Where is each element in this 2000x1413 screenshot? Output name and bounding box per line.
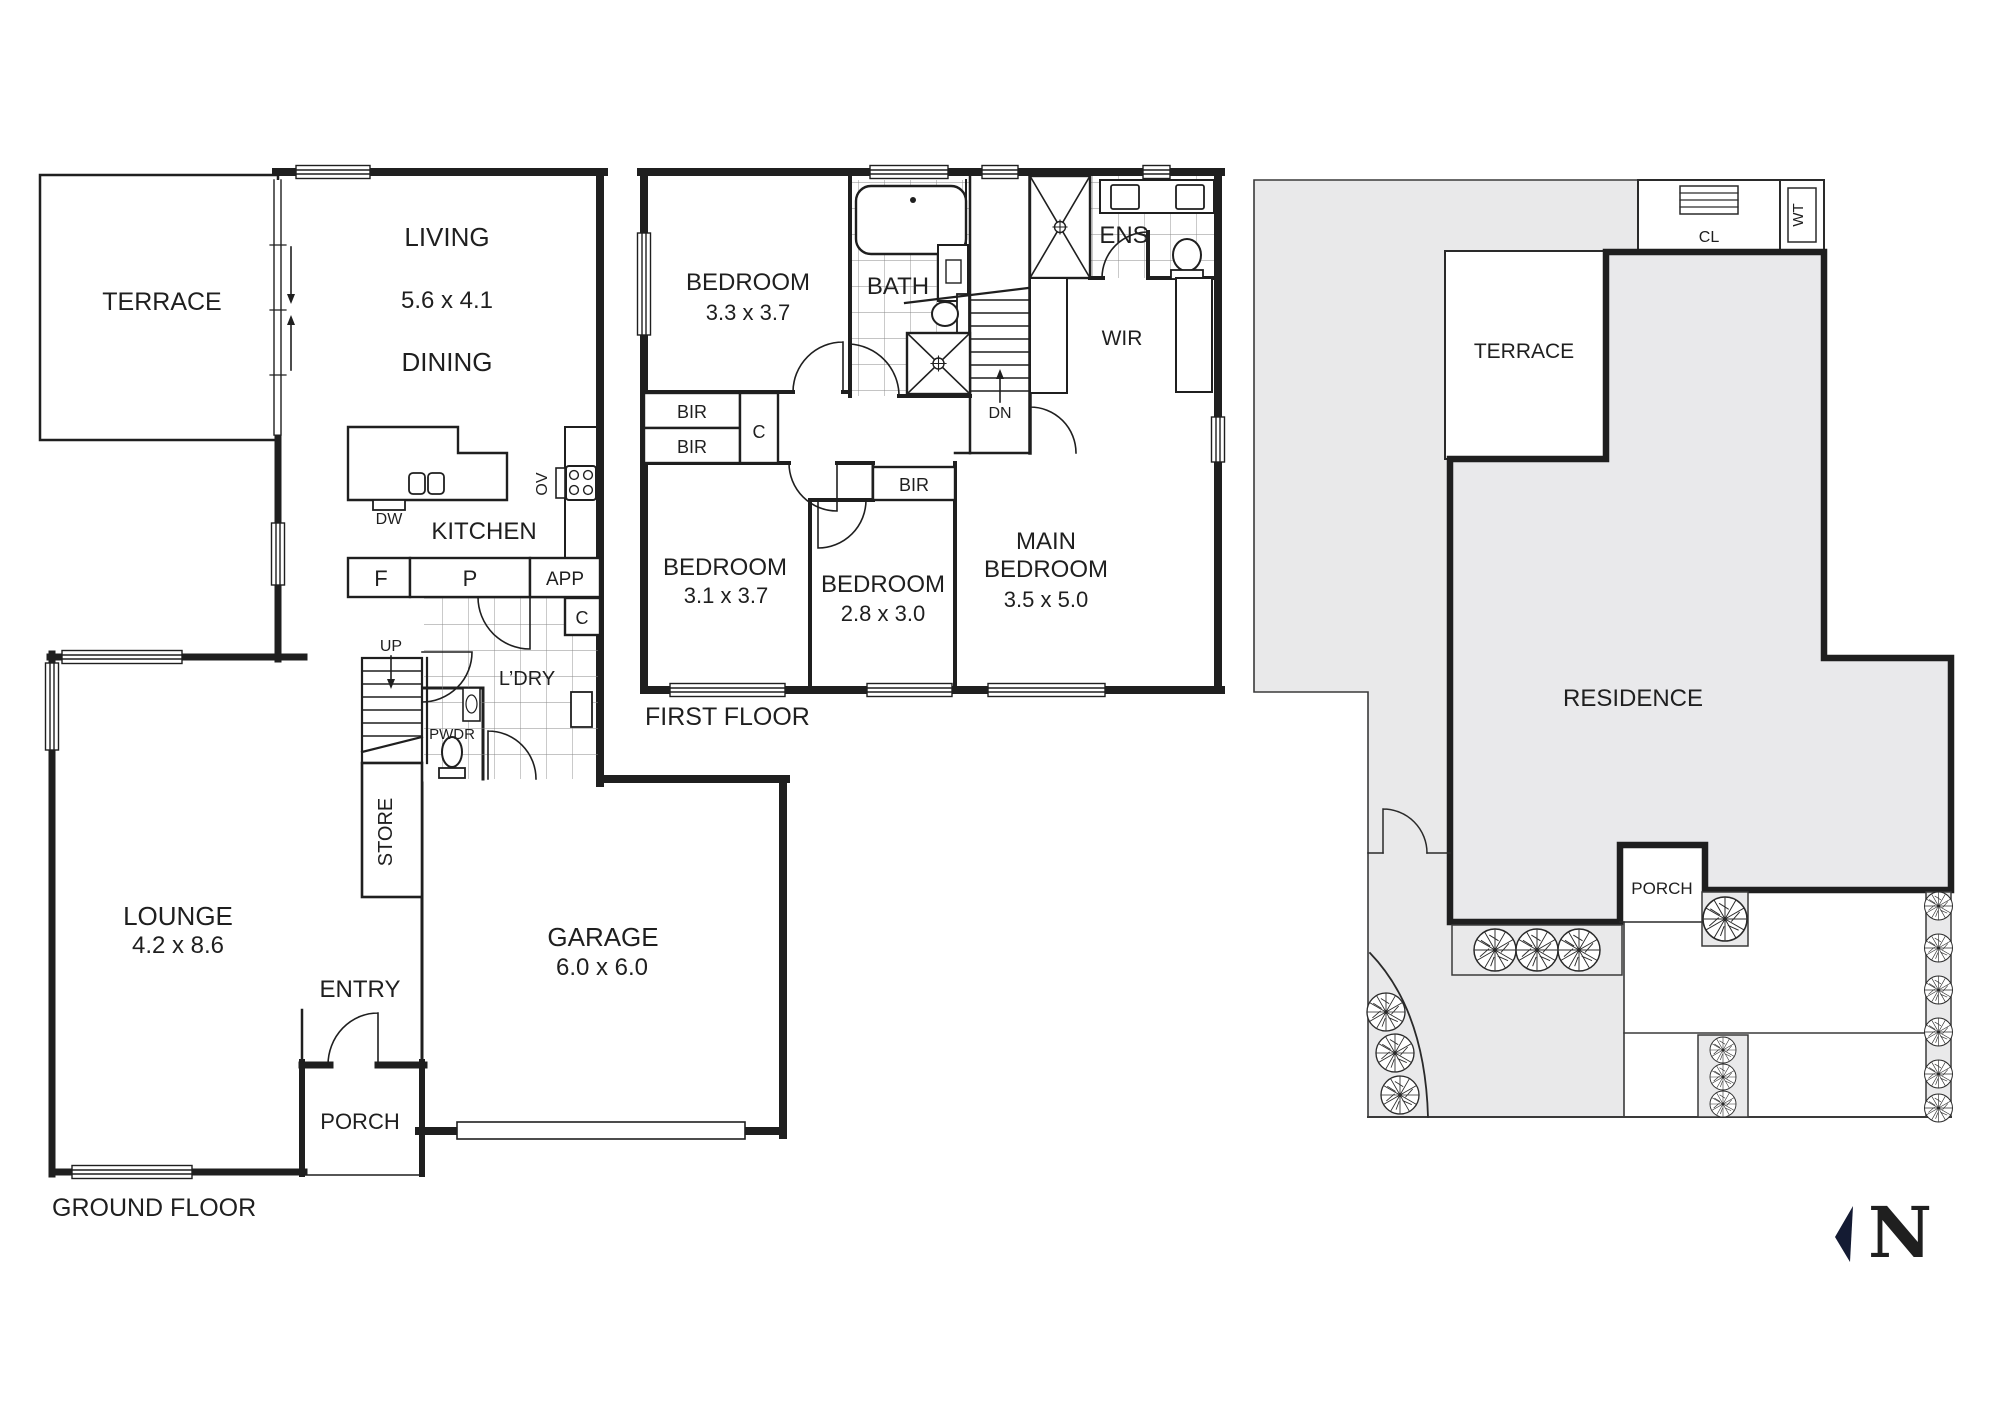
first-floor-plan: BEDROOM 3.3 x 3.7 BATH ENS WIR DN BIR BI… [638, 166, 1225, 732]
kitchen-label: KITCHEN [431, 518, 536, 545]
tree-icon [1381, 1076, 1419, 1114]
powder-label: PWDR [429, 726, 475, 743]
up-label: UP [380, 638, 402, 655]
store-label: STORE [375, 798, 397, 867]
laundry-trough-icon [571, 692, 592, 727]
cupboard-label: C [753, 422, 766, 442]
window [638, 233, 651, 335]
bedroom3-label: BEDROOM [821, 571, 945, 598]
main-bedroom-door [1030, 407, 1076, 453]
sliding-door [270, 180, 295, 435]
window [870, 166, 948, 179]
lounge-label: LOUNGE [123, 901, 233, 931]
bedroom2-door [789, 463, 837, 511]
tree-icon [1925, 1060, 1953, 1088]
clothesline-icon [1680, 186, 1738, 214]
tree-icon [1925, 1018, 1953, 1046]
window [982, 166, 1018, 179]
window [988, 684, 1105, 697]
bir-label: BIR [899, 475, 929, 495]
north-label: N [1868, 1191, 1932, 1274]
sink-icon [1111, 185, 1139, 209]
tree-icon [1925, 934, 1953, 962]
shower-icon [1030, 176, 1090, 278]
dishwasher-label: DW [376, 511, 404, 528]
floorplan-canvas: TERRACE LIVING 5.6 x 4.1 DINING DW KITCH… [0, 0, 2000, 1413]
lounge-dim-label: 4.2 x 8.6 [132, 932, 224, 959]
dn-arrow-icon [996, 369, 1004, 402]
sink-icon [1176, 185, 1204, 209]
laundry-label: L’DRY [499, 668, 555, 690]
garage-dim-label: 6.0 x 6.0 [556, 954, 648, 981]
window [867, 684, 952, 697]
site-plan: CL WT [1254, 180, 1953, 1122]
toilet-cistern [439, 768, 465, 778]
tree-icon [1367, 993, 1405, 1031]
window [272, 523, 285, 585]
dishwasher-box [373, 500, 405, 510]
tree-icon [1516, 929, 1558, 971]
appliances-label: APP [546, 569, 584, 590]
main-bedroom-label1: MAIN [1016, 528, 1076, 555]
living-dim-label: 5.6 x 4.1 [401, 287, 493, 314]
porch-label: PORCH [320, 1109, 399, 1134]
slide-arrow-down-icon [287, 247, 295, 304]
tree-icon [1710, 1064, 1736, 1090]
main-bedroom-label2: BEDROOM [984, 556, 1108, 583]
site-terrace-label: TERRACE [1474, 340, 1574, 363]
window [1143, 166, 1170, 179]
north-arrow-icon [1835, 1206, 1853, 1262]
front-door [328, 1013, 378, 1065]
tree-icon [1703, 897, 1747, 941]
bedroom1-label: BEDROOM [686, 269, 810, 296]
clothesline-label: CL [1699, 229, 1720, 246]
tree-icon [1925, 976, 1953, 1004]
tree-icon [1558, 929, 1600, 971]
tree-icon [1710, 1037, 1736, 1063]
bath-label: BATH [867, 273, 929, 300]
oven-label: OV [534, 472, 551, 495]
cooktop-icon [556, 466, 596, 500]
window [46, 663, 59, 750]
toilet-icon [932, 302, 958, 326]
bedroom2-label: BEDROOM [663, 554, 787, 581]
bedroom1-door [793, 342, 843, 392]
kitchen-island [348, 427, 507, 510]
bedroom3-door [818, 500, 866, 548]
toilet-icon [1173, 239, 1201, 271]
window [1212, 417, 1225, 462]
tree-icon [1376, 1034, 1414, 1072]
tree-icon [1925, 1094, 1953, 1122]
garage-door [457, 1122, 745, 1139]
window [72, 1166, 192, 1179]
bedroom1-dim-label: 3.3 x 3.7 [706, 300, 790, 325]
terrace-label: TERRACE [102, 288, 221, 316]
water-tank-label: WT [1790, 203, 1807, 226]
bedroom3-dim-label: 2.8 x 3.0 [841, 601, 925, 626]
entry-label: ENTRY [320, 976, 401, 1003]
sink-icon [428, 473, 444, 494]
bathtub-icon [856, 186, 966, 254]
garage-label: GARAGE [547, 922, 658, 952]
tree-icon [1710, 1091, 1736, 1117]
window [296, 166, 370, 179]
dn-label: DN [988, 405, 1011, 422]
ground-floor-title: GROUND FLOOR [52, 1194, 256, 1222]
dining-label: DINING [402, 347, 493, 377]
slide-arrow-up-icon [287, 315, 295, 370]
wir-label: WIR [1102, 327, 1143, 350]
first-floor-title: FIRST FLOOR [645, 703, 810, 731]
cupboard-label: C [576, 608, 589, 628]
window [62, 651, 182, 664]
tree-icon [1925, 892, 1953, 920]
bir-label: BIR [677, 437, 707, 457]
window [670, 684, 785, 697]
living-label: LIVING [404, 222, 489, 252]
main-bedroom-dim-label: 3.5 x 5.0 [1004, 587, 1088, 612]
site-porch-label: PORCH [1631, 879, 1692, 898]
pantry-label: P [463, 566, 478, 591]
ens-label: ENS [1099, 222, 1148, 249]
bedroom2-dim-label: 3.1 x 3.7 [684, 583, 768, 608]
sink-icon [409, 473, 425, 494]
residence-label: RESIDENCE [1563, 685, 1703, 712]
north-compass: N [1835, 1191, 1932, 1274]
fridge-label: F [374, 566, 387, 591]
tree-icon [1474, 929, 1516, 971]
shower-icon [907, 333, 970, 394]
floorplan-page: TERRACE LIVING 5.6 x 4.1 DINING DW KITCH… [0, 0, 2000, 1413]
ground-stairs [362, 658, 427, 763]
bir-label: BIR [677, 402, 707, 422]
